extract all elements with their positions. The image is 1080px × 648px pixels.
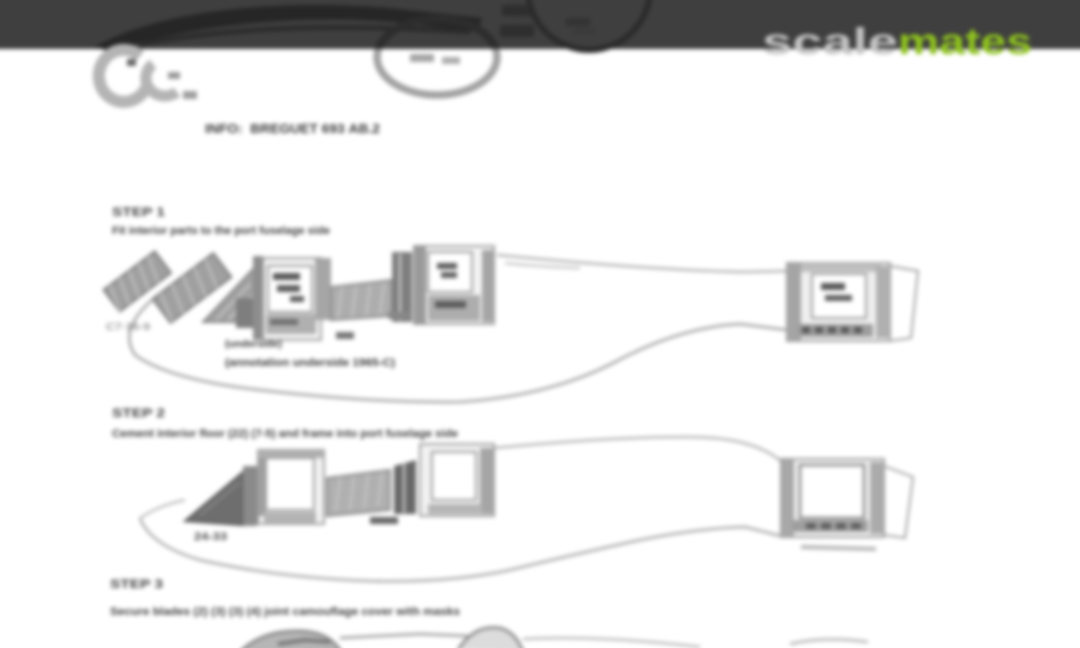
svg-text:STEP 3: STEP 3 xyxy=(110,577,163,591)
svg-text:(annotation underside 1965-C): (annotation underside 1965-C) xyxy=(225,357,395,369)
svg-text:INFO: BREGUET 693 AB.2: INFO: BREGUET 693 AB.2 xyxy=(205,121,380,136)
svg-text:C7-16-9: C7-16-9 xyxy=(106,322,151,333)
svg-text:STEP 2: STEP 2 xyxy=(112,406,165,420)
svg-text:24-33: 24-33 xyxy=(194,531,227,543)
svg-text:Cement interior floor (22) (7-: Cement interior floor (22) (7-5) and fra… xyxy=(112,428,458,440)
svg-text:mates: mates xyxy=(898,21,1032,62)
svg-text:(underside): (underside) xyxy=(225,339,282,350)
svg-text:STEP 1: STEP 1 xyxy=(112,205,165,219)
svg-text:scale: scale xyxy=(762,21,898,62)
svg-text:Fit interior parts to the port: Fit interior parts to the port fuselage … xyxy=(112,225,330,237)
svg-text:Secure blades (2) (3) (3) (4): Secure blades (2) (3) (3) (4) joint camo… xyxy=(110,606,460,618)
